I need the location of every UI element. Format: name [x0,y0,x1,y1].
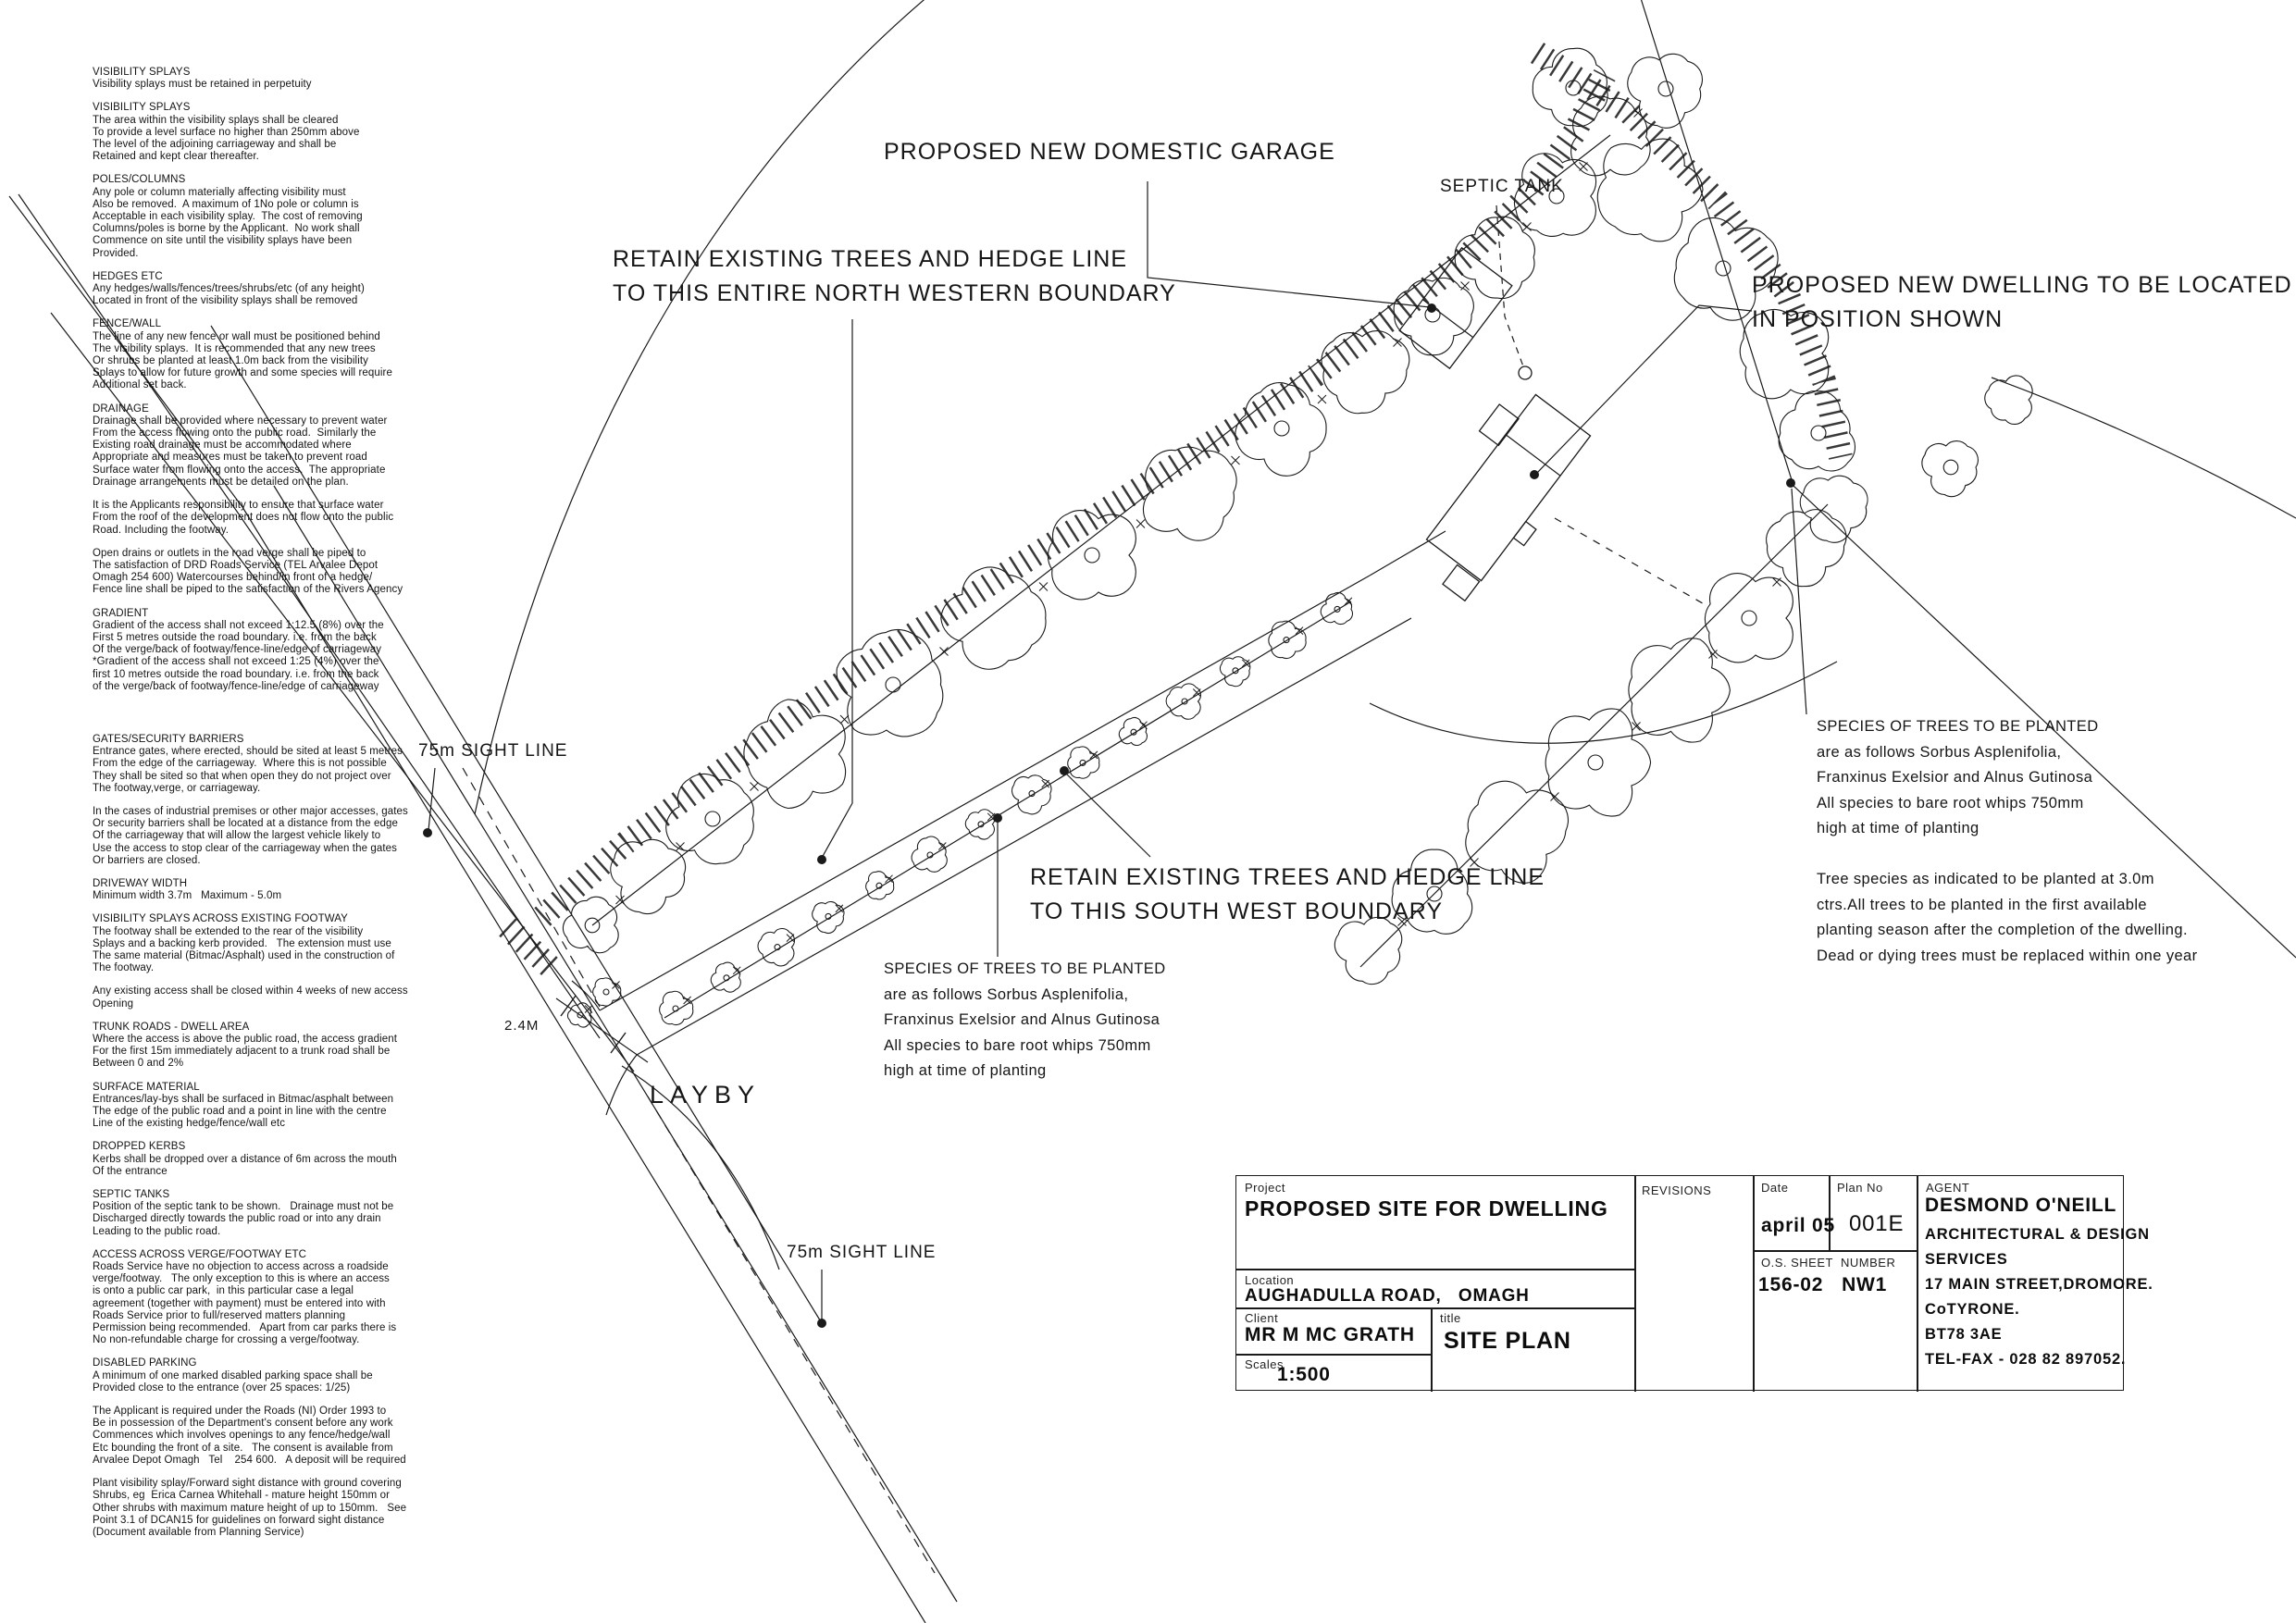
divider [1634,1176,1636,1392]
note-section: VISIBILITY SPLAYSVisibility splays must … [93,67,453,91]
note-line: Also be removed. A maximum of 1No pole o… [93,199,453,211]
leader-dot [1786,478,1795,488]
note-line: Other shrubs with maximum mature height … [93,1503,453,1515]
tree-trunk [1742,611,1756,626]
note-line: *Gradient of the access shall not exceed… [93,656,453,668]
note-line: Drainage shall be provided where necessa… [93,415,453,427]
label-proposed-garage: PROPOSED NEW DOMESTIC GARAGE [884,135,1335,169]
label-species-right: SPECIES OF TREES TO BE PLANTED are as fo… [1817,714,2198,969]
tree-trunk [1811,426,1826,440]
planted-tree-symbol [711,962,740,992]
divider [1431,1307,1433,1392]
note-line: Arvalee Depot Omagh Tel 254 600. A depos… [93,1455,453,1467]
note-section: SEPTIC TANKSPosition of the septic tank … [93,1189,453,1238]
tree-symbol [1048,511,1136,600]
note-line: The area within the visibility splays sh… [93,115,453,127]
dashed-sight-line [1496,205,1523,366]
divider [1236,1307,1634,1309]
note-section: GRADIENTGradient of the access shall not… [93,608,453,693]
hedge-hatching [542,75,1605,917]
planted-tree-symbol [1119,717,1147,745]
note-line: Kerbs shall be dropped over a distance o… [93,1154,453,1166]
note-heading: SEPTIC TANKS [93,1189,453,1201]
tree-symbol [1922,441,1978,497]
divider [1829,1176,1831,1250]
leader-line [1148,181,1430,307]
tree-trunk [1274,421,1289,436]
note-line: Road. Including the footway. [93,525,453,537]
note-section: POLES/COLUMNSAny pole or column material… [93,174,453,259]
note-line: Columns/poles is borne by the Applicant.… [93,223,453,235]
note-line: From the access flowing onto the public … [93,427,453,440]
note-line: Plant visibility splay/Forward sight dis… [93,1478,453,1490]
tree-symbol [1985,376,2032,425]
note-line: The same material (Bitmac/Asphalt) used … [93,950,453,962]
note-line: They shall be sited so that when open th… [93,771,453,783]
note-line: Splays and a backing kerb provided. The … [93,938,453,950]
note-section: It is the Applicants responsibility to e… [93,500,453,537]
note-line: No non-refundable charge for crossing a … [93,1334,453,1346]
leader-dot [817,855,826,864]
client-value: MR M MC GRATH [1245,1324,1415,1346]
date-label: Date [1761,1181,1788,1195]
note-line: Commences which involves openings to any… [93,1430,453,1442]
note-line: Be in possession of the Department's con… [93,1418,453,1430]
note-line: The footway. [93,962,453,974]
boundary-line [1370,531,1446,576]
planted-tree-symbol [912,836,947,872]
dwelling-outline [1443,564,1480,601]
note-heading: DRIVEWAY WIDTH [93,878,453,890]
note-line: Use the access to stop clear of the carr… [93,843,453,855]
tick-mark [1232,456,1240,465]
note-heading: DROPPED KERBS [93,1141,453,1153]
agent-name: DESMOND O'NEILL [1925,1195,2116,1217]
dwelling-outline [1426,394,1590,580]
label-retain-nw-boundary: RETAIN EXISTING TREES AND HEDGE LINE TO … [613,242,1176,311]
tick-mark [1318,395,1326,403]
note-section: DISABLED PARKINGA minimum of one marked … [93,1357,453,1394]
note-line: Roads Service have no objection to acces… [93,1261,453,1273]
tick-mark [751,783,759,791]
note-line: From the roof of the development does no… [93,512,453,524]
note-line: Line of the existing hedge/fence/wall et… [93,1118,453,1130]
dimension-line [556,998,648,1062]
note-line: Gradient of the access shall not exceed … [93,620,453,632]
leader-dot [1530,470,1539,479]
note-line: Or security barriers shall be located at… [93,818,453,830]
note-section: DROPPED KERBSKerbs shall be dropped over… [93,1141,453,1178]
tree-trunk [1588,755,1603,770]
dashed-sight-line [648,1096,935,1573]
note-section: GATES/SECURITY BARRIERSEntrance gates, w… [93,734,453,795]
note-line: Between 0 and 2% [93,1058,453,1070]
note-line: Entrances/lay-bys shall be surfaced in B… [93,1094,453,1106]
planted-tree-symbol [813,902,844,934]
note-line: Or barriers are closed. [93,855,453,867]
note-line: first 10 metres outside the road boundar… [93,669,453,681]
note-section: HEDGES ETCAny hedges/walls/fences/trees/… [93,271,453,308]
note-line: Any hedges/walls/fences/trees/shrubs/etc… [93,283,453,295]
date-value: april 05 [1761,1215,1835,1237]
location-value: AUGHADULLA ROAD, OMAGH [1245,1286,1530,1307]
note-line: The visibility splays. It is recommended… [93,343,453,355]
note-line: Opening [93,998,453,1010]
note-heading: VISIBILITY SPLAYS [93,67,453,79]
note-line: Point 3.1 of DCAN15 for guidelines on fo… [93,1515,453,1527]
note-line: A minimum of one marked disabled parking… [93,1370,453,1382]
tick-mark [676,843,685,851]
note-line: Located in front of the visibility splay… [93,295,453,307]
tree-trunk [1085,548,1099,563]
note-line: Or shrubs be planted at least 1.0m back … [93,355,453,367]
note-section: FENCE/WALLThe line of any new fence or w… [93,318,453,391]
note-line: The satisfaction of DRD Roads Service (T… [93,560,453,572]
note-section: Open drains or outlets in the road verge… [93,548,453,597]
dashed-sight-line [1555,518,1707,606]
note-line: Any existing access shall be closed with… [93,985,453,997]
boundary-line [475,0,929,814]
scales-value: 1:500 [1277,1364,1331,1386]
note-section: ACCESS ACROSS VERGE/FOOTWAY ETCRoads Ser… [93,1249,453,1347]
note-line: Fence line shall be piped to the satisfa… [93,584,453,596]
note-line: Acceptable in each visibility splay. The… [93,211,453,223]
tick-mark [840,715,849,724]
note-line: Of the verge/back of footway/fence-line/… [93,644,453,656]
note-section: SURFACE MATERIALEntrances/lay-bys shall … [93,1082,453,1131]
tick-mark [1709,650,1718,659]
leader-dot [817,1319,826,1328]
planted-tree-symbol [660,991,693,1024]
tree-symbol [1628,54,1703,128]
note-line: Surface water from flowing onto the acce… [93,465,453,477]
label-retain-sw-boundary: RETAIN EXISTING TREES AND HEDGE LINE TO … [1030,861,1545,929]
tree-symbol [1767,510,1846,587]
note-line: The line of any new fence or wall must b… [93,331,453,343]
tick-mark [940,648,949,656]
label-sight-line-2: 75m SIGHT LINE [787,1242,936,1264]
note-line: Existing road drainage must be accommoda… [93,440,453,452]
divider [1236,1269,1634,1270]
note-line: Shrubs, eg Erica Carnea Whitehall - matu… [93,1490,453,1502]
tree-symbol [1800,476,1868,542]
note-line: Leading to the public road. [93,1226,453,1238]
note-line: Open drains or outlets in the road verge… [93,548,453,560]
note-line: First 5 metres outside the road boundary… [93,632,453,644]
note-line: Discharged directly towards the public r… [93,1213,453,1225]
note-section: In the cases of industrial premises or o… [93,806,453,867]
note-line: The level of the adjoining carriageway a… [93,139,453,151]
note-line: Where the access is above the public roa… [93,1034,453,1046]
tree-trunk [705,811,720,826]
note-heading: HEDGES ETC [93,271,453,283]
leader-line [1536,305,1752,474]
tree-symbol [1629,638,1731,742]
planted-tree-symbol [866,872,894,899]
label-sight-line-1: 75m SIGHT LINE [418,740,567,762]
note-line: Retained and kept clear thereafter. [93,151,453,163]
plan-no-value: 001E [1849,1211,1904,1237]
label-proposed-dwelling: PROPOSED NEW DWELLING TO BE LOCATED IN P… [1752,268,2292,337]
tick-mark [616,896,625,904]
note-heading: DRAINAGE [93,403,453,415]
note-heading: FENCE/WALL [93,318,453,330]
divider [1753,1250,1917,1252]
tree-trunk [1943,460,1958,475]
proposed-dwelling [1393,380,1601,609]
tick-mark [1580,163,1588,171]
tree-symbol [563,897,618,952]
tick-mark [733,967,740,974]
location-label: Location [1245,1273,1294,1287]
label-species-mid: SPECIES OF TREES TO BE PLANTED are as fo… [884,957,1166,1084]
leader-line [1066,774,1150,857]
tick-mark [1634,109,1643,118]
note-heading: ACCESS ACROSS VERGE/FOOTWAY ETC [93,1249,453,1261]
dimension-tick [611,1033,626,1053]
note-line: Of the carriageway that will allow the l… [93,830,453,842]
note-line: Appropriate and measures must be taken t… [93,452,453,464]
note-heading: DISABLED PARKING [93,1357,453,1369]
drawing-sheet: VISIBILITY SPLAYSVisibility splays must … [0,0,2296,1623]
note-line: To provide a level surface no higher tha… [93,127,453,139]
note-section: Any existing access shall be closed with… [93,985,453,1010]
boundary-line [1992,378,2296,518]
project-label: Project [1245,1181,1285,1195]
note-line: The edge of the public road and a point … [93,1106,453,1118]
tree-trunk [886,677,900,692]
note-line: The footway shall be extended to the rea… [93,926,453,938]
planted-tree-symbol [1321,593,1352,625]
title-block: Project PROPOSED SITE FOR DWELLING REVIS… [1235,1175,2124,1391]
dwelling-outline [1513,522,1535,546]
leader-dot [1060,766,1069,775]
note-line: Entrance gates, where erected, should be… [93,746,453,758]
note-line: Drainage arrangements must be detailed o… [93,477,453,489]
boundary-line [664,601,1351,1018]
note-line: (Document available from Planning Servic… [93,1527,453,1539]
tree-trunk [603,989,609,995]
note-line: Commence on site until the visibility sp… [93,235,453,247]
note-line: Permission being recommended. Apart from… [93,1322,453,1334]
note-line: Provided. [93,248,453,260]
divider [1917,1176,1918,1392]
divider [1236,1354,1431,1356]
agent-label: AGENT [1926,1181,1969,1195]
dashed-sight-line [463,768,600,1007]
note-line: The footway,verge, or carriageway. [93,783,453,795]
note-line: of the verge/back of footway/fence-line/… [93,681,453,693]
note-heading: GRADIENT [93,608,453,620]
note-line: Additional set back. [93,379,453,391]
divider [1753,1176,1755,1392]
note-line: agreement (together with payment) must b… [93,1298,453,1310]
note-line: Minimum width 3.7m Maximum - 5.0m [93,890,453,902]
label-layby: LAYBY [650,1081,761,1109]
tick-mark [1136,520,1145,528]
planted-tree-symbol [758,929,795,966]
note-line: verge/footway. The only exception to thi… [93,1273,453,1285]
tick-mark [1523,223,1532,231]
note-line: Etc bounding the front of a site. The co… [93,1443,453,1455]
boundary-line [600,576,1370,1010]
agent-address: ARCHITECTURAL & DESIGN SERVICES 17 MAIN … [1925,1222,2153,1372]
note-line: For the first 15m immediately adjacent t… [93,1046,453,1058]
boundary-line [606,1055,637,1115]
label-septic-tank: SEPTIC TANK [1440,176,1564,198]
revisions-label: REVISIONS [1642,1183,1711,1197]
notes-column: VISIBILITY SPLAYSVisibility splays must … [93,67,453,1550]
note-section: DRAINAGEDrainage shall be provided where… [93,403,453,489]
boundary-line [1370,662,1837,743]
client-label: Client [1245,1311,1278,1325]
project-value: PROPOSED SITE FOR DWELLING [1245,1196,1608,1221]
planted-tree-symbol [965,810,995,839]
tree-symbol [1705,574,1793,663]
note-section: VISIBILITY SPLAYS ACROSS EXISTING FOOTWA… [93,913,453,974]
plan-no-label: Plan No [1837,1181,1883,1195]
note-heading: VISIBILITY SPLAYS ACROSS EXISTING FOOTWA… [93,913,453,925]
garage-partition [1422,300,1472,338]
tree-symbol [1597,139,1703,242]
planted-tree-symbol [1166,684,1200,719]
note-section: VISIBILITY SPLAYSThe area within the vis… [93,102,453,163]
label-entrance-width: 2.4M [504,1018,539,1034]
tick-mark [1461,282,1470,291]
note-line: Visibility splays must be retained in pe… [93,79,453,91]
note-line: Any pole or column materially affecting … [93,187,453,199]
note-line: In the cases of industrial premises or o… [93,806,453,818]
note-section: The Applicant is required under the Road… [93,1406,453,1467]
note-line: is onto a public car park, in this parti… [93,1285,453,1297]
note-line: Roads Service prior to full/reserved mat… [93,1310,453,1322]
note-section: TRUNK ROADS - DWELL AREAWhere the access… [93,1022,453,1071]
note-heading: TRUNK ROADS - DWELL AREA [93,1022,453,1034]
title-value: SITE PLAN [1444,1328,1571,1355]
dwelling-partition [1506,435,1560,477]
note-section: DRIVEWAY WIDTHMinimum width 3.7m Maximum… [93,878,453,902]
tree-symbol [1779,391,1855,471]
os-sheet-value: 156-02 NW1 [1758,1274,1887,1296]
tree-symbol [1235,383,1326,477]
tick-mark [1039,583,1048,591]
tick-mark [787,935,794,942]
note-line: From the edge of the carriageway. Where … [93,758,453,770]
note-line: The Applicant is required under the Road… [93,1406,453,1418]
note-heading: SURFACE MATERIAL [93,1082,453,1094]
tree-trunk [1716,261,1731,276]
os-sheet-label: O.S. SHEET [1761,1256,1833,1270]
note-line: It is the Applicants responsibility to e… [93,500,453,512]
note-line: Omagh 254 600) Watercourses behind/in fr… [93,572,453,584]
note-heading: POLES/COLUMNS [93,174,453,186]
leader-line [822,319,852,858]
note-line: Splays to allow for future growth and so… [93,367,453,379]
note-heading: VISIBILITY SPLAYS [93,102,453,114]
note-line: Position of the septic tank to be shown.… [93,1201,453,1213]
title-label: title [1440,1311,1461,1325]
note-line: Provided close to the entrance (over 25 … [93,1382,453,1394]
note-line: Of the entrance [93,1166,453,1178]
planted-tree-symbol [1068,747,1099,778]
note-section: Plant visibility splay/Forward sight dis… [93,1478,453,1539]
note-heading: GATES/SECURITY BARRIERS [93,734,453,746]
septic-tank-symbol [1519,366,1532,379]
tree-trunk [1658,81,1673,96]
tree-symbol [1455,217,1534,298]
os-number-label: NUMBER [1841,1256,1895,1270]
